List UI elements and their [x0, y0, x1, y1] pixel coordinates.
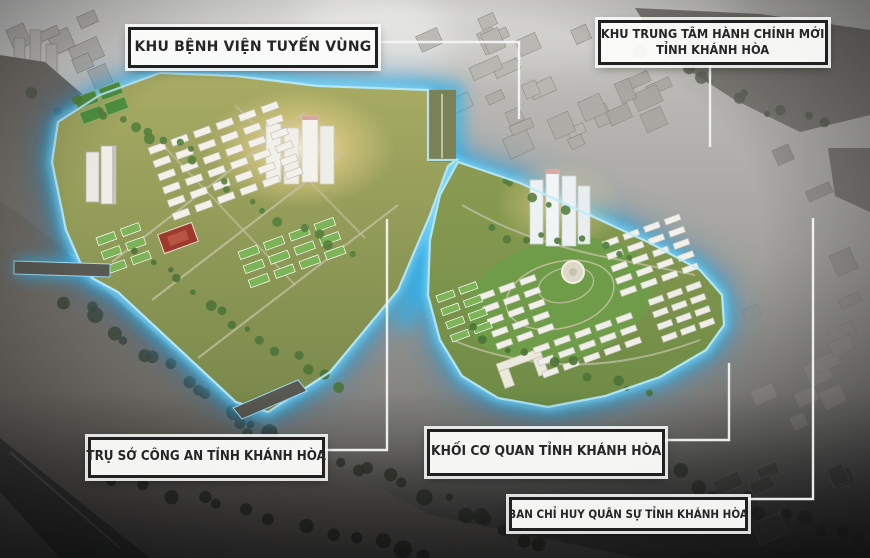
label-military-command-text: BAN CHỈ HUY QUÂN SỰ TỈNH KHÁNH HÒA — [509, 507, 749, 522]
label-military-command: BAN CHỈ HUY QUÂN SỰ TỈNH KHÁNH HÒA — [509, 497, 748, 531]
label-regional-hospital: KHU BỆNH VIỆN TUYẾN VÙNG — [128, 27, 378, 68]
masterplan-screenshot: KHU BỆNH VIỆN TUYẾN VÙNG KHU TRUNG TÂM H… — [0, 0, 870, 558]
label-regional-hospital-text: KHU BỆNH VIỆN TUYẾN VÙNG — [135, 38, 372, 56]
label-police-hq: TRỤ SỞ CÔNG AN TỈNH KHÁNH HÒA — [88, 437, 325, 478]
label-new-admin-center-line1: KHU TRUNG TÂM HÀNH CHÍNH MỚI — [601, 27, 824, 43]
label-provincial-agency-block: KHỐI CƠ QUAN TỈNH KHÁNH HÒA — [427, 429, 665, 476]
label-new-admin-center-line2: TỈNH KHÁNH HÒA — [656, 43, 769, 59]
label-police-hq-text: TRỤ SỞ CÔNG AN TỈNH KHÁNH HÒA — [87, 449, 326, 466]
label-provincial-agency-block-text: KHỐI CƠ QUAN TỈNH KHÁNH HÒA — [431, 444, 661, 461]
label-new-admin-center: KHU TRUNG TÂM HÀNH CHÍNH MỚITỈNH KHÁNH H… — [598, 20, 828, 65]
